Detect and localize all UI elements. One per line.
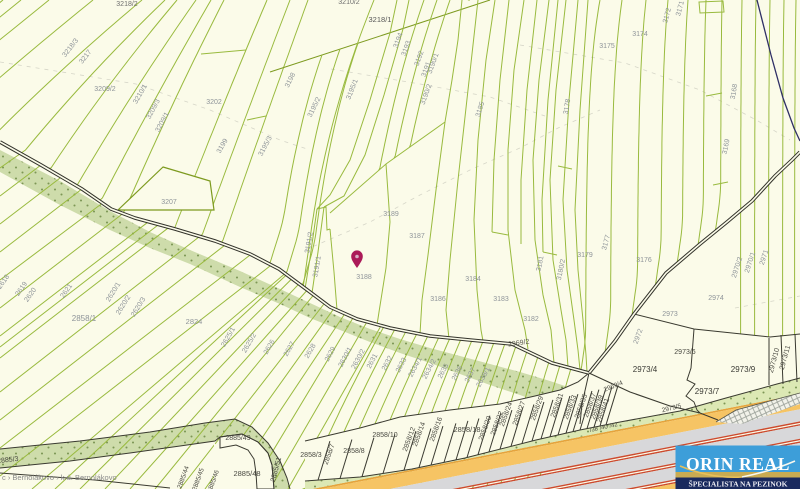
svg-text:2858/8: 2858/8 [343,448,365,455]
svg-text:3175: 3175 [599,43,615,50]
svg-text:2885/49: 2885/49 [225,435,250,442]
svg-text:ORIN REAL: ORIN REAL [686,454,790,474]
svg-text:2974: 2974 [708,295,724,302]
svg-text:3202: 3202 [206,99,222,106]
svg-text:2973/7: 2973/7 [695,387,720,396]
svg-text:3187: 3187 [409,233,425,240]
svg-text:3186: 3186 [430,296,446,303]
svg-text:3218/1: 3218/1 [369,15,392,24]
svg-text:3184: 3184 [465,276,481,283]
svg-text:3176: 3176 [636,257,652,264]
svg-text:3174: 3174 [632,31,648,38]
svg-text:2973/9: 2973/9 [731,365,756,374]
svg-text:2858/3: 2858/3 [300,452,322,459]
svg-text:2973/6: 2973/6 [674,349,696,356]
svg-text:2885/48: 2885/48 [233,469,260,478]
svg-text:3182: 3182 [523,316,539,323]
svg-text:2824: 2824 [186,317,203,326]
svg-text:2973: 2973 [662,311,678,318]
svg-text:3189: 3189 [383,211,399,218]
svg-text:2858/18: 2858/18 [453,425,480,434]
svg-text:3183: 3183 [493,296,509,303]
svg-text:3210/2: 3210/2 [338,0,360,6]
svg-text:3218/2: 3218/2 [116,1,138,8]
svg-text:3209/2: 3209/2 [94,86,116,93]
svg-text:3207: 3207 [161,199,177,206]
svg-text:3188: 3188 [356,274,372,281]
svg-text:2973/4: 2973/4 [633,365,658,374]
svg-text:2858/1: 2858/1 [72,314,97,323]
svg-text:ŠPECIALISTA NA PEZINOK: ŠPECIALISTA NA PEZINOK [688,479,787,489]
svg-text:c › Bernolákovo › k.ú. Bernolá: c › Bernolákovo › k.ú. Bernolákovo [2,473,117,482]
svg-text:3179: 3179 [577,252,593,259]
svg-text:2858/10: 2858/10 [372,432,397,439]
